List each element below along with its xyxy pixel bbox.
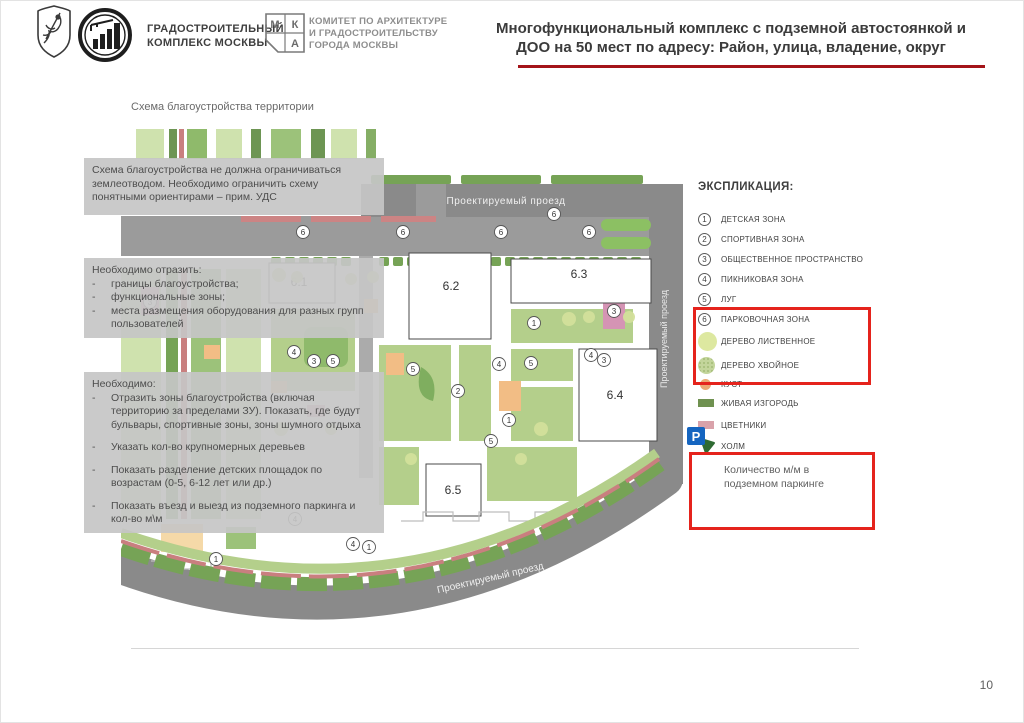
slide-title: Многофункциональный комплекс с подземной… [471,19,991,57]
hedge-swatch-icon [698,399,714,407]
zone-marker-number: 6 [552,210,557,219]
road-label-right: Проектируемый проезд [659,289,669,388]
legend-item-sportivnaya-zona: 2 СПОРТИВНАЯ ЗОНА [698,229,876,249]
zone-marker-number: 3 [602,356,607,365]
slide: ГРАДОСТРОИТЕЛЬНЫЙ КОМПЛЕКС МОСКВЫ М К А … [0,0,1024,723]
moscow-coat-of-arms-icon [36,5,72,59]
page-number: 10 [963,678,993,692]
bullet-dash: - [92,500,101,527]
building-label-6-3: 6.3 [571,267,588,281]
org2-line1: КОМИТЕТ ПО АРХИТЕКТУРЕ [309,16,447,28]
legend-label: ДЕТСКАЯ ЗОНА [721,215,786,224]
org2-line2: И ГРАДОСТРОИТЕЛЬСТВУ [309,28,447,40]
note-2-item: -границы благоустройства; [92,278,374,292]
zone-marker-number: 5 [529,359,534,368]
red-highlight-box-legend [693,307,871,385]
mka-letter-m: М [270,19,279,31]
zone-marker-number: 1 [214,555,219,564]
title-underline [518,65,985,68]
zone-marker-number: 4 [497,360,502,369]
legend-number-circle: 2 [698,233,711,246]
org1-line1: ГРАДОСТРОИТЕЛЬНЫЙ [147,22,284,36]
legend-label: ПИКНИКОВАЯ ЗОНА [721,275,804,284]
legend-item-zhivaya-izgorod: ЖИВАЯ ИЗГОРОДЬ [698,392,876,414]
bullet-dash: - [92,305,101,332]
zone-marker-number: 6 [587,228,592,237]
building-label-6-5: 6.5 [445,483,462,497]
zone-marker-number: 1 [532,319,537,328]
plan-top-hedges [371,175,643,184]
org2-line3: ГОРОДА МОСКВЫ [309,40,447,52]
note-3-title: Необходимо: [92,378,374,392]
note-3-item-text: Отразить зоны благоустройства (включая т… [101,392,374,433]
slide-title-line2: ДОО на 50 мест по адресу: Район, улица, … [471,38,991,57]
legend-number-circle: 4 [698,273,711,286]
plan-flowerbed-strips [241,216,436,222]
note-2-item: -места размещения оборудования для разны… [92,305,374,332]
bullet-dash: - [92,278,101,292]
legend-item-detskaya-zona: 1 ДЕТСКАЯ ЗОНА [698,209,876,229]
note-3-item-text: Показать разделение детских площадок по … [101,464,374,491]
note-3-item: -Показать въезд и выезд из подземного па… [92,500,374,527]
zone-marker-number: 4 [292,348,297,357]
zone-marker-number: 3 [312,357,317,366]
note-3-item: -Указать кол-во крупномерных деревьев [92,441,374,455]
note-3-item-text: Указать кол-во крупномерных деревьев [101,441,374,455]
zone-marker-number: 4 [351,540,356,549]
zone-marker-number: 6 [301,228,306,237]
org1-name: ГРАДОСТРОИТЕЛЬНЫЙ КОМПЛЕКС МОСКВЫ [147,22,284,50]
bullet-dash: - [92,392,101,433]
note-1-text: Схема благоустройства не должна ограничи… [92,164,374,205]
org2-name: КОМИТЕТ ПО АРХИТЕКТУРЕ И ГРАДОСТРОИТЕЛЬС… [309,16,447,52]
legend-label: ХОЛМ [721,442,745,451]
zone-marker-number: 5 [489,437,494,446]
org1-line2: КОМПЛЕКС МОСКВЫ [147,36,284,50]
bullet-dash: - [92,291,101,305]
note-2-item-text: границы благоустройства; [101,278,374,292]
parking-callout-text: Количество м/м в подземном паркинге [724,463,849,491]
zone-marker-number: 1 [507,416,512,425]
zone-marker-number: 6 [401,228,406,237]
legend-item-piknikovaya-zona: 4 ПИКНИКОВАЯ ЗОНА [698,269,876,289]
zone-marker-number: 5 [331,357,336,366]
zone-marker-number: 1 [367,543,372,552]
note-2-title: Необходимо отразить: [92,264,374,278]
mka-logo-icon: М К А [265,13,305,53]
note-2-item-text: места размещения оборудования для разных… [101,305,374,332]
parking-island [601,237,651,249]
legend-number-circle: 5 [698,293,711,306]
note-box-1: Схема благоустройства не должна ограничи… [84,158,384,215]
bottom-divider-line [131,648,859,649]
parking-icon: P [687,427,705,445]
note-box-2: Необходимо отразить: -границы благоустро… [84,258,384,338]
zone-marker-number: 5 [411,365,416,374]
legend-title: ЭКСПЛИКАЦИЯ: [698,181,876,193]
legend-item-lug: 5 ЛУГ [698,289,876,309]
zone-marker-number: 2 [456,387,461,396]
mka-letter-a: А [291,38,299,50]
red-callout-box-parking: Количество м/м в подземном паркинге [689,452,875,530]
legend-number-circle: 3 [698,253,711,266]
legend-label: ЛУГ [721,295,736,304]
zone-marker-number: 6 [499,228,504,237]
zone-marker-number: 4 [589,351,594,360]
note-3-item: -Отразить зоны благоустройства (включая … [92,392,374,433]
building-label-6-2: 6.2 [443,279,460,293]
stroykompleks-logo-icon [77,7,133,63]
legend-label: ОБЩЕСТВЕННОЕ ПРОСТРАНСТВО [721,255,863,264]
legend-item-obshestvennoe-prostranstvo: 3 ОБЩЕСТВЕННОЕ ПРОСТРАНСТВО [698,249,876,269]
parking-island [601,219,651,231]
mka-letter-k: К [292,19,299,31]
building-label-6-4: 6.4 [607,388,624,402]
slide-title-line1: Многофункциональный комплекс с подземной… [471,19,991,38]
zone-marker-number: 3 [612,307,617,316]
legend-number-circle: 1 [698,213,711,226]
note-2-item-text: функциональные зоны; [101,291,374,305]
note-2-item: -функциональные зоны; [92,291,374,305]
bullet-dash: - [92,464,101,491]
note-3-item: -Показать разделение детских площадок по… [92,464,374,491]
plan-left-strips [136,129,376,159]
legend-label: ЖИВАЯ ИЗГОРОДЬ [721,399,799,408]
bullet-dash: - [92,441,101,455]
note-3-item-text: Показать въезд и выезд из подземного пар… [101,500,374,527]
scheme-subtitle: Схема благоустройства территории [131,101,314,113]
road-label-top: Проектируемый проезд [447,196,566,207]
legend-label: СПОРТИВНАЯ ЗОНА [721,235,805,244]
legend-label: ЦВЕТНИКИ [721,421,766,430]
note-box-3: Необходимо: -Отразить зоны благоустройст… [84,372,384,533]
legend-item-cvetniki: ЦВЕТНИКИ [698,414,876,436]
